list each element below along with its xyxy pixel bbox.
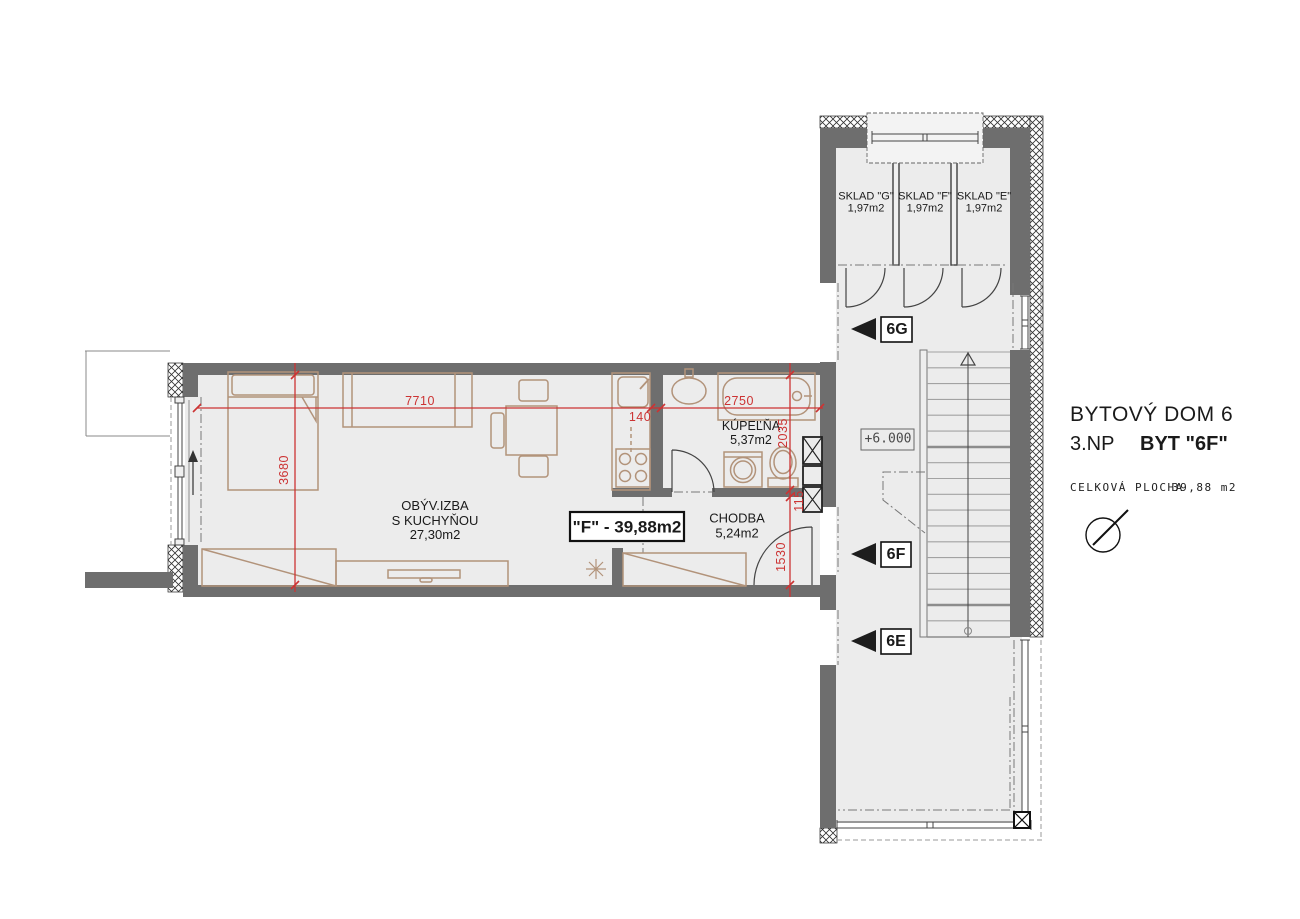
dim-living-width: 7710: [405, 394, 435, 408]
dim-bath-depth: 2035: [776, 418, 790, 448]
door-label-6g: 6G: [886, 321, 907, 339]
total-area-label: CELKOVÁ PLOCHA: [1070, 482, 1184, 494]
dim-wall-115: 115: [792, 490, 806, 511]
drain-box: [1014, 812, 1030, 828]
dim-living-depth: 3680: [277, 455, 291, 485]
door-label-6f: 6F: [887, 546, 906, 564]
storage-g-name: SKLAD "G": [838, 191, 894, 203]
living-name-line1: OBÝV.IZBA: [392, 499, 479, 514]
title-floor: 3.NP: [1070, 433, 1114, 455]
living-name-line2: S KUCHYŇOU: [392, 514, 479, 529]
room-label-bathroom: KÚPEĽŇA 5,37m2: [722, 419, 780, 447]
dim-bath-width: 2750: [724, 394, 754, 408]
floor-plan-canvas: BYTOVÝ DOM 6 3.NP BYT "6F" CELKOVÁ PLOCH…: [0, 0, 1300, 919]
hall-name: CHODBA: [709, 511, 765, 526]
storage-f-name: SKLAD "F": [898, 191, 952, 203]
storage-g-area: 1,97m2: [838, 203, 894, 215]
elevation-label: +6.000: [865, 433, 912, 448]
total-area-value: 39,88 m2: [1172, 482, 1237, 494]
floor-plan-drawing: [0, 0, 1300, 919]
dim-kitchen-wall: 140: [629, 410, 651, 424]
balcony-outline: [85, 351, 170, 436]
bathroom-name: KÚPEĽŇA: [722, 419, 780, 433]
title-unit: BYT "6F": [1140, 433, 1228, 455]
storage-e-area: 1,97m2: [957, 203, 1011, 215]
room-label-storage-e: SKLAD "E" 1,97m2: [957, 191, 1011, 216]
room-label-storage-f: SKLAD "F" 1,97m2: [898, 191, 952, 216]
light-symbol: [586, 559, 606, 579]
living-area: 27,30m2: [392, 528, 479, 543]
reference-symbol: [1086, 510, 1128, 552]
hall-area: 5,24m2: [709, 526, 765, 541]
title-building: BYTOVÝ DOM 6: [1070, 403, 1233, 427]
dim-hall-width: 1530: [774, 542, 788, 572]
room-label-hall: CHODBA 5,24m2: [709, 511, 765, 540]
storage-e-name: SKLAD "E": [957, 191, 1011, 203]
storage-f-area: 1,97m2: [898, 203, 952, 215]
door-label-6e: 6E: [886, 633, 906, 651]
room-label-living: OBÝV.IZBA S KUCHYŇOU 27,30m2: [392, 499, 479, 543]
bathroom-area: 5,37m2: [722, 433, 780, 447]
top-window: [867, 113, 983, 163]
room-label-storage-g: SKLAD "G" 1,97m2: [838, 191, 894, 216]
apartment-tag: "F" - 39,88m2: [573, 517, 682, 536]
